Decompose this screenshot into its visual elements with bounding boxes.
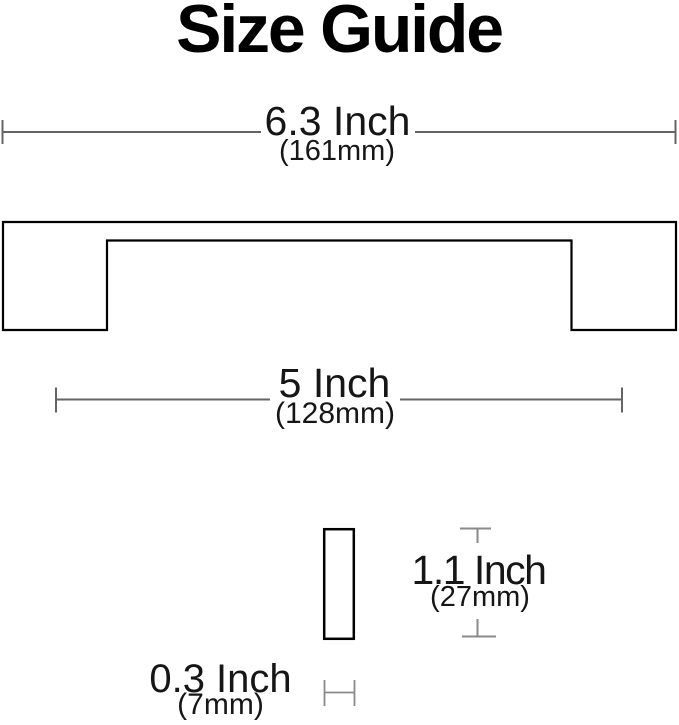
svg-text:Size Guide: Size Guide (176, 0, 502, 67)
svg-text:(27mm): (27mm) (430, 581, 530, 613)
svg-text:(7mm): (7mm) (177, 688, 264, 721)
svg-text:(161mm): (161mm) (279, 135, 395, 167)
svg-text:(128mm): (128mm) (275, 397, 395, 430)
